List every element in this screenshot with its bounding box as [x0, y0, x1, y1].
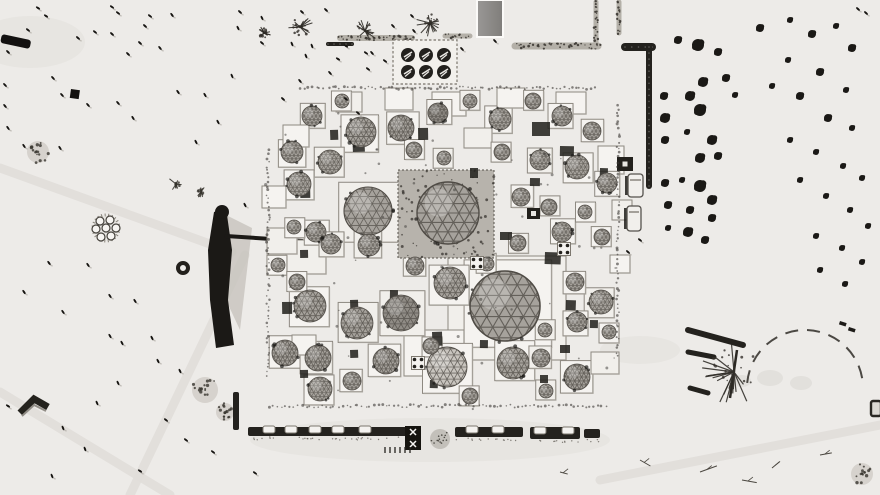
- parked-vehicle: [624, 206, 641, 231]
- roof-vent: [558, 243, 571, 256]
- scene-svg: [0, 0, 880, 495]
- hedge-wall: [327, 43, 353, 45]
- roof-block: [497, 88, 525, 108]
- dark-box: [617, 157, 633, 171]
- gate: [405, 426, 421, 450]
- equipment-enclosure: [393, 40, 457, 84]
- fuzzy-bush: [192, 377, 218, 403]
- roof-vent: [412, 357, 425, 370]
- stone-wall: [515, 42, 602, 50]
- hedge-wall: [648, 46, 650, 187]
- roof-block: [385, 88, 413, 110]
- stone-wall: [445, 33, 470, 39]
- parked-vehicle: [625, 174, 643, 197]
- stone-wall: [616, 1, 622, 35]
- roof-block: [610, 255, 630, 273]
- roof-block: [262, 186, 286, 208]
- roof-vent: [471, 257, 484, 270]
- stone-wall: [593, 0, 599, 46]
- dark-box: [527, 208, 540, 219]
- fuzzy-bush: [851, 463, 873, 485]
- roof-block: [591, 352, 619, 374]
- aerial-photo-snowy-dome-complex: [0, 0, 880, 495]
- roof-block: [464, 128, 492, 148]
- fuzzy-bush: [430, 429, 450, 449]
